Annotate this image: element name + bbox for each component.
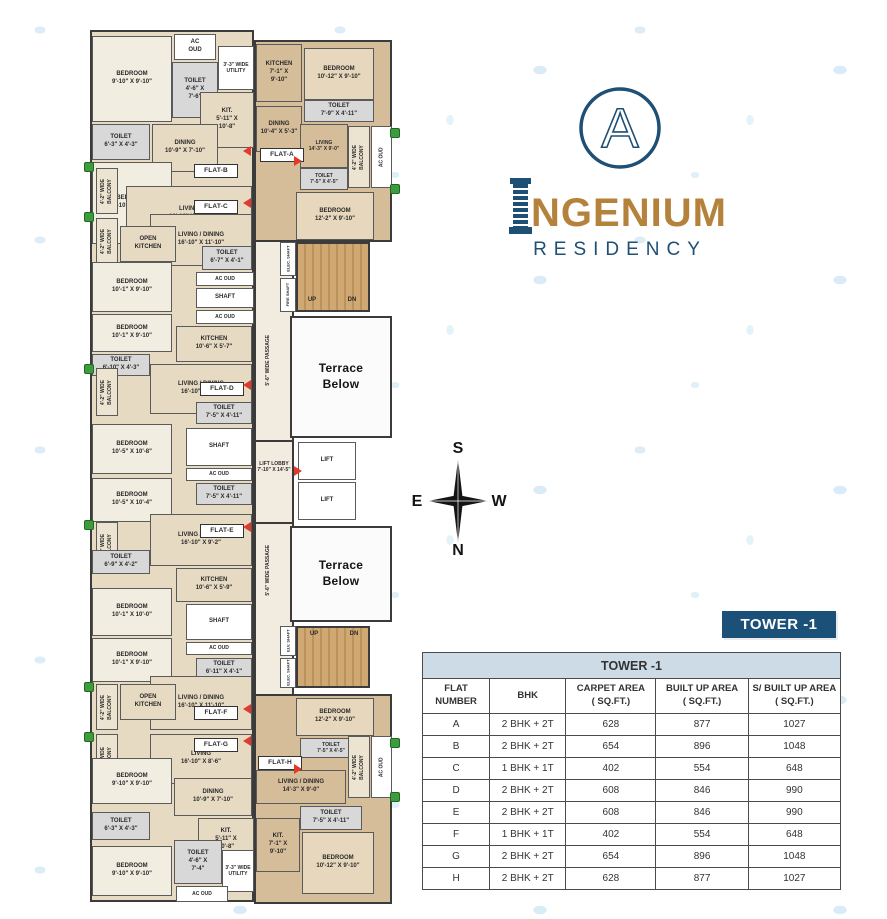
room-4-2-wide: 4'-2" WIDEBALCONY bbox=[96, 218, 118, 264]
table-cell: 990 bbox=[748, 802, 840, 824]
room-bedroom: BEDROOM10'-12" X 9'-10" bbox=[304, 48, 374, 100]
room-shaft: SHAFT bbox=[196, 288, 254, 308]
entrance-arrow-icon bbox=[243, 736, 251, 746]
table-cell: 2 BHK + 2T bbox=[490, 780, 566, 802]
room-dn: DN bbox=[342, 628, 366, 641]
room-3-3-wide: 3'-3" WIDEUTILITY bbox=[218, 46, 254, 90]
room-living-dining: LIVING / DINING16'-10" X 9'-2" bbox=[150, 514, 252, 566]
balcony-plant-icon bbox=[84, 682, 94, 692]
table-cell: 654 bbox=[566, 736, 656, 758]
room-bedroom: BEDROOM10'-5" X 10'-8" bbox=[92, 424, 172, 474]
room-living-dining: LIVING / DINING14'-3" X 9'-0" bbox=[256, 770, 346, 804]
table-cell: 2 BHK + 2T bbox=[490, 802, 566, 824]
logo-monogram-circle: A bbox=[493, 84, 747, 172]
room-kitchen: KITCHEN10'-6" X 5'-7" bbox=[176, 326, 252, 362]
table-cell: 846 bbox=[656, 802, 748, 824]
logo-column-i-icon bbox=[513, 178, 528, 234]
balcony-plant-icon bbox=[390, 738, 400, 748]
table-cell: 877 bbox=[656, 868, 748, 890]
balcony-plant-icon bbox=[84, 212, 94, 222]
room-flat-b: FLAT-B bbox=[194, 164, 238, 178]
room-lift: LIFT bbox=[298, 482, 356, 520]
table-column-header: BHK bbox=[490, 679, 566, 714]
room-ac-oud: AC OUD bbox=[371, 126, 392, 188]
table-cell: H bbox=[423, 868, 490, 890]
room-ac-oud: AC OUD bbox=[186, 642, 252, 655]
room-toilet: TOILET4'-6" X7'-4" bbox=[174, 840, 222, 884]
compass-south-label: S bbox=[453, 440, 464, 457]
entrance-arrow-icon bbox=[243, 704, 251, 714]
table-cell: C bbox=[423, 758, 490, 780]
room-flat-d: FLAT-D bbox=[200, 382, 244, 396]
table-cell: E bbox=[423, 802, 490, 824]
table-row: A2 BHK + 2T6288771027 bbox=[423, 714, 841, 736]
room-shaft: SHAFT bbox=[186, 604, 252, 640]
table-cell: 1 BHK + 1T bbox=[490, 758, 566, 780]
balcony-plant-icon bbox=[390, 184, 400, 194]
table-row: F1 BHK + 1T402554648 bbox=[423, 824, 841, 846]
room-lift-lobby: LIFT LOBBY7'-10" X 14'-5" bbox=[252, 452, 296, 482]
terrace-below-2: TerraceBelow bbox=[290, 526, 392, 622]
brand-subtitle: RESIDENCY bbox=[493, 239, 747, 261]
entrance-arrow-icon bbox=[243, 380, 251, 390]
table-title: TOWER -1 bbox=[423, 653, 841, 679]
table-cell: 554 bbox=[656, 758, 748, 780]
balcony-plant-icon bbox=[84, 364, 94, 374]
table-cell: 608 bbox=[566, 780, 656, 802]
table-cell: 2 BHK + 2T bbox=[490, 714, 566, 736]
room-5-6-wide-passage: 5'-6" WIDE PASSAGE bbox=[258, 326, 278, 394]
compass-rose-icon: S E W N bbox=[408, 438, 508, 556]
room-toilet: TOILET6'-7" X 4'-1" bbox=[202, 246, 252, 270]
room-ac-oud: AC OUD bbox=[196, 310, 254, 324]
room-bedroom: BEDROOM9'-10" X 9'-10" bbox=[92, 846, 172, 896]
room-dining: DINING10'-4" X 5'-3" bbox=[256, 106, 302, 152]
table-cell: 648 bbox=[748, 824, 840, 846]
brand-logo: A NGENIUM RESIDENCY bbox=[493, 84, 747, 261]
room-flat-f: FLAT-F bbox=[194, 706, 238, 720]
room-ac-oud: AC OUD bbox=[196, 272, 254, 286]
table-cell: 1 BHK + 1T bbox=[490, 824, 566, 846]
room-bedroom: BEDROOM9'-10" X 9'-10" bbox=[92, 758, 172, 804]
room-5-6-wide-passage: 5'-6" WIDE PASSAGE bbox=[258, 536, 278, 604]
room-dn: DN bbox=[340, 294, 364, 307]
brand-name: NGENIUM bbox=[531, 195, 727, 232]
table-column-header: BUILT UP AREA ( SQ.FT.) bbox=[656, 679, 748, 714]
room-up: UP bbox=[300, 294, 324, 307]
room-4-2-wide: 4'-2" WIDEBALCONY bbox=[348, 736, 370, 798]
balcony-plant-icon bbox=[390, 792, 400, 802]
table-cell: 402 bbox=[566, 758, 656, 780]
table-cell: 2 BHK + 2T bbox=[490, 736, 566, 758]
table-cell: D bbox=[423, 780, 490, 802]
room-toilet: TOILET7'-5" X 4'-11" bbox=[300, 806, 362, 830]
table-column-header: CARPET AREA ( SQ.FT.) bbox=[566, 679, 656, 714]
table-row: H2 BHK + 2T6288771027 bbox=[423, 868, 841, 890]
room-4-2-wide: 4'-2" WIDEBALCONY bbox=[96, 368, 118, 416]
brand-wordmark: NGENIUM bbox=[493, 178, 747, 232]
room-fire-shaft: FIRE SHAFT bbox=[280, 278, 296, 312]
room-ac-oud: AC OUD bbox=[176, 886, 228, 902]
entrance-arrow-icon bbox=[294, 466, 302, 476]
balcony-plant-icon bbox=[84, 162, 94, 172]
table-cell: 990 bbox=[748, 780, 840, 802]
table-cell: 846 bbox=[656, 780, 748, 802]
room-toilet: TOILET7'-5" X 4'-11" bbox=[196, 483, 252, 505]
table-cell: 877 bbox=[656, 714, 748, 736]
table-row: E2 BHK + 2T608846990 bbox=[423, 802, 841, 824]
table-cell: 654 bbox=[566, 846, 656, 868]
entrance-arrow-icon bbox=[243, 146, 251, 156]
room-bedroom: BEDROOM9'-10" X 9'-10" bbox=[92, 36, 172, 122]
room-4-2-wide: 4'-2" WIDEBALCONY bbox=[348, 126, 370, 188]
room-toilet: TOILET7'-5" X 4'-11" bbox=[196, 402, 252, 424]
table-cell: A bbox=[423, 714, 490, 736]
room-4-2-wide: 4'-2" WIDEBALCONY bbox=[96, 168, 118, 214]
entrance-arrow-icon bbox=[243, 198, 251, 208]
table-cell: G bbox=[423, 846, 490, 868]
room-toilet: TOILET7'-9" X 4'-11" bbox=[304, 100, 374, 122]
room-open: OPENKITCHEN bbox=[120, 226, 176, 262]
room-bedroom: BEDROOM10'-12" X 9'-10" bbox=[302, 832, 374, 894]
table-cell: 608 bbox=[566, 802, 656, 824]
room-flat-e: FLAT-E bbox=[200, 524, 244, 538]
room-flat-g: FLAT-G bbox=[194, 738, 238, 752]
table-cell: 648 bbox=[748, 758, 840, 780]
room-toilet: TOILET6'-3" X 4'-3" bbox=[92, 124, 150, 160]
balcony-plant-icon bbox=[84, 732, 94, 742]
logo-monogram: A bbox=[601, 96, 639, 159]
entrance-arrow-icon bbox=[243, 522, 251, 532]
room-ac: ACOUD bbox=[174, 34, 216, 60]
table-cell: 2 BHK + 2T bbox=[490, 868, 566, 890]
room-bedroom: BEDROOM12'-2" X 9'-10" bbox=[296, 192, 374, 240]
table-cell: F bbox=[423, 824, 490, 846]
room-toilet: TOILET6'-3" X 4'-3" bbox=[92, 812, 150, 840]
table-row: G2 BHK + 2T6548961048 bbox=[423, 846, 841, 868]
room-bedroom: BEDROOM12'-2" X 9'-10" bbox=[296, 698, 374, 736]
table-column-header: S/ BUILT UP AREA ( SQ.FT.) bbox=[748, 679, 840, 714]
entrance-arrow-icon bbox=[294, 156, 302, 166]
balcony-plant-icon bbox=[390, 128, 400, 138]
table-cell: 896 bbox=[656, 736, 748, 758]
room-toilet: TOILET7'-5" X 4'-5" bbox=[300, 168, 348, 190]
compass-west-label: W bbox=[491, 493, 507, 510]
brochure-page: TerraceBelowTerraceBelowBEDROOM9'-10" X … bbox=[0, 0, 887, 919]
room-shaft: SHAFT bbox=[186, 428, 252, 466]
compass-north-label: N bbox=[452, 542, 464, 556]
room-elec-shaft: ELEC. SHAFT bbox=[280, 242, 296, 276]
table-cell: 628 bbox=[566, 714, 656, 736]
room-lift: LIFT bbox=[298, 442, 356, 480]
table-row: C1 BHK + 1T402554648 bbox=[423, 758, 841, 780]
table-row: B2 BHK + 2T6548961048 bbox=[423, 736, 841, 758]
entrance-arrow-icon bbox=[294, 764, 302, 774]
terrace-below-1: TerraceBelow bbox=[290, 316, 392, 438]
table-cell: 896 bbox=[656, 846, 748, 868]
room-elv-shaft: ELV. SHAFT bbox=[280, 626, 296, 656]
room-living: LIVING14'-3" X 9'-0" bbox=[300, 124, 348, 168]
tower-badge: TOWER -1 bbox=[722, 611, 836, 638]
room-elec-shaft: ELEC. SHAFT bbox=[280, 658, 296, 688]
monogram-a-icon: A bbox=[576, 84, 664, 172]
room-up: UP bbox=[302, 628, 326, 641]
table-cell: 402 bbox=[566, 824, 656, 846]
room-4-2-wide: 4'-2" WIDEBALCONY bbox=[96, 684, 118, 730]
compass-east-label: E bbox=[412, 493, 423, 510]
room-bedroom: BEDROOM10'-1" X 9'-10" bbox=[92, 262, 172, 312]
table-cell: 628 bbox=[566, 868, 656, 890]
room-dining: DINING10'-9" X 7'-10" bbox=[174, 778, 252, 816]
balcony-plant-icon bbox=[84, 520, 94, 530]
room-ac-oud: AC OUD bbox=[371, 736, 392, 798]
table-cell: 1027 bbox=[748, 714, 840, 736]
room-toilet: TOILET6'-9" X 4'-2" bbox=[92, 550, 150, 574]
room-kit: KIT.7'-1" X9'-10" bbox=[256, 818, 300, 872]
table-cell: 1048 bbox=[748, 846, 840, 868]
table-cell: 554 bbox=[656, 824, 748, 846]
table-cell: B bbox=[423, 736, 490, 758]
flat-area-table-wrap: TOWER -1FLAT NUMBERBHKCARPET AREA ( SQ.F… bbox=[422, 652, 841, 890]
table-cell: 2 BHK + 2T bbox=[490, 846, 566, 868]
flat-area-table: TOWER -1FLAT NUMBERBHKCARPET AREA ( SQ.F… bbox=[422, 652, 841, 890]
room-bedroom: BEDROOM10'-1" X 9'-10" bbox=[92, 314, 172, 352]
room-kitchen: KITCHEN10'-6" X 5'-9" bbox=[176, 568, 252, 602]
room-open: OPENKITCHEN bbox=[120, 684, 176, 720]
room-bedroom: BEDROOM10'-1" X 10'-0" bbox=[92, 588, 172, 636]
room-ac-oud: AC OUD bbox=[186, 468, 252, 481]
table-row: D2 BHK + 2T608846990 bbox=[423, 780, 841, 802]
table-cell: 1048 bbox=[748, 736, 840, 758]
table-column-header: FLAT NUMBER bbox=[423, 679, 490, 714]
table-cell: 1027 bbox=[748, 868, 840, 890]
room-flat-c: FLAT-C bbox=[194, 200, 238, 214]
room-kitchen: KITCHEN7'-1" X9'-10" bbox=[256, 44, 302, 102]
